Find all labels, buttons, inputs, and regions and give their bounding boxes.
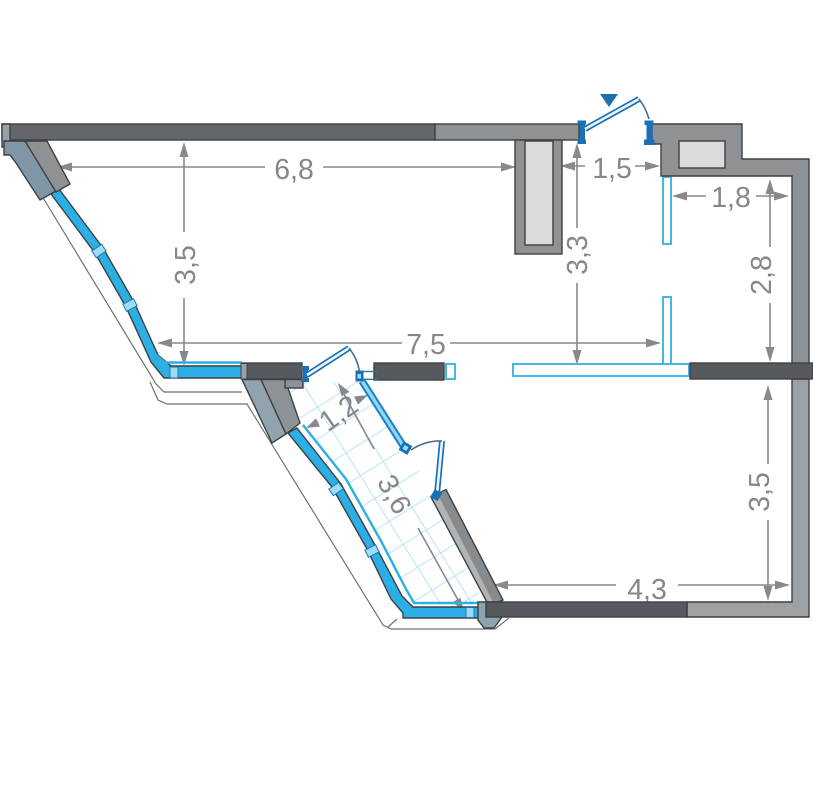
svg-text:1,8: 1,8 (711, 182, 751, 214)
svg-text:3,5: 3,5 (170, 245, 202, 285)
svg-text:1,5: 1,5 (592, 153, 632, 185)
svg-text:3,3: 3,3 (562, 235, 594, 275)
svg-text:3,5: 3,5 (744, 472, 776, 512)
svg-text:2,8: 2,8 (746, 255, 778, 295)
svg-text:4,3: 4,3 (627, 574, 667, 606)
svg-text:6,8: 6,8 (274, 154, 314, 186)
svg-text:7,5: 7,5 (406, 329, 446, 361)
